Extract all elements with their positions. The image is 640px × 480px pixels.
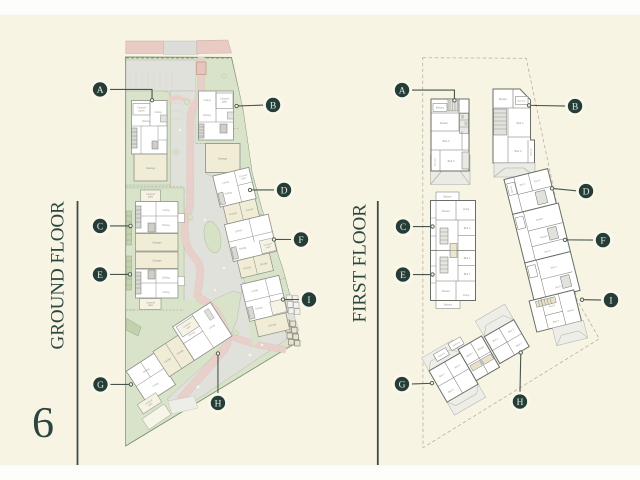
svg-text:C: C — [97, 222, 103, 232]
svg-text:Living: Living — [463, 208, 470, 211]
svg-text:B: B — [270, 101, 276, 111]
svg-text:Master: Master — [442, 210, 450, 213]
svg-text:patio: patio — [222, 100, 228, 103]
svg-text:patio: patio — [148, 304, 154, 307]
svg-text:Bed 2: Bed 2 — [448, 159, 455, 163]
svg-text:Bed 3: Bed 3 — [515, 149, 522, 153]
svg-text:E: E — [97, 271, 103, 281]
svg-text:Dining: Dining — [203, 113, 211, 117]
svg-text:Living: Living — [463, 294, 470, 297]
svg-text:Dining: Dining — [162, 276, 170, 280]
svg-text:patio: patio — [148, 196, 154, 199]
svg-text:G: G — [97, 381, 104, 391]
svg-text:Covered: Covered — [146, 193, 155, 196]
svg-text:Master: Master — [442, 290, 450, 293]
svg-text:Covered: Covered — [146, 301, 155, 304]
svg-text:Covered: Covered — [137, 107, 146, 110]
svg-text:Bed 2: Bed 2 — [464, 227, 471, 230]
svg-text:Bed 3: Bed 3 — [443, 139, 450, 143]
svg-text:I: I — [307, 296, 310, 306]
svg-text:Garage: Garage — [152, 259, 162, 263]
svg-text:Garage: Garage — [146, 166, 156, 170]
svg-text:Living: Living — [163, 208, 170, 212]
svg-text:Living: Living — [204, 98, 211, 102]
svg-text:Living: Living — [155, 110, 162, 114]
svg-text:Balcony: Balcony — [435, 157, 437, 166]
svg-text:C: C — [400, 223, 406, 233]
svg-text:Balcony: Balcony — [444, 305, 453, 307]
svg-text:Balcony: Balcony — [436, 108, 445, 110]
svg-text:F: F — [600, 236, 605, 246]
svg-text:Bed 2: Bed 2 — [464, 257, 471, 260]
svg-text:Living: Living — [163, 290, 170, 294]
svg-text:6: 6 — [32, 398, 54, 447]
svg-text:Covered: Covered — [220, 98, 229, 101]
svg-text:F: F — [298, 236, 303, 246]
svg-text:Bed 3: Bed 3 — [464, 273, 471, 276]
svg-text:B: B — [572, 102, 578, 112]
svg-text:Bed 2: Bed 2 — [517, 121, 524, 125]
svg-text:Dining: Dining — [162, 223, 170, 227]
svg-text:E: E — [400, 271, 406, 281]
svg-text:D: D — [281, 186, 288, 196]
svg-text:H: H — [517, 398, 524, 408]
svg-text:Dining: Dining — [142, 119, 150, 123]
svg-text:A: A — [97, 86, 104, 96]
svg-text:Master: Master — [440, 121, 448, 125]
svg-text:G: G — [399, 380, 406, 390]
svg-text:Master: Master — [499, 97, 507, 101]
svg-text:Garage: Garage — [218, 157, 228, 161]
svg-text:Balcony: Balcony — [530, 148, 532, 155]
svg-text:FIRST FLOOR: FIRST FLOOR — [350, 204, 371, 323]
svg-text:D: D — [583, 187, 590, 197]
svg-text:A: A — [399, 86, 406, 96]
svg-text:Balcony: Balcony — [518, 101, 527, 103]
svg-text:H: H — [215, 399, 222, 409]
svg-text:I: I — [609, 297, 612, 307]
svg-text:GROUND FLOOR: GROUND FLOOR — [48, 201, 69, 350]
svg-text:porch: porch — [139, 109, 145, 112]
svg-text:Garage: Garage — [152, 241, 162, 245]
svg-text:Balcony: Balcony — [443, 197, 452, 199]
